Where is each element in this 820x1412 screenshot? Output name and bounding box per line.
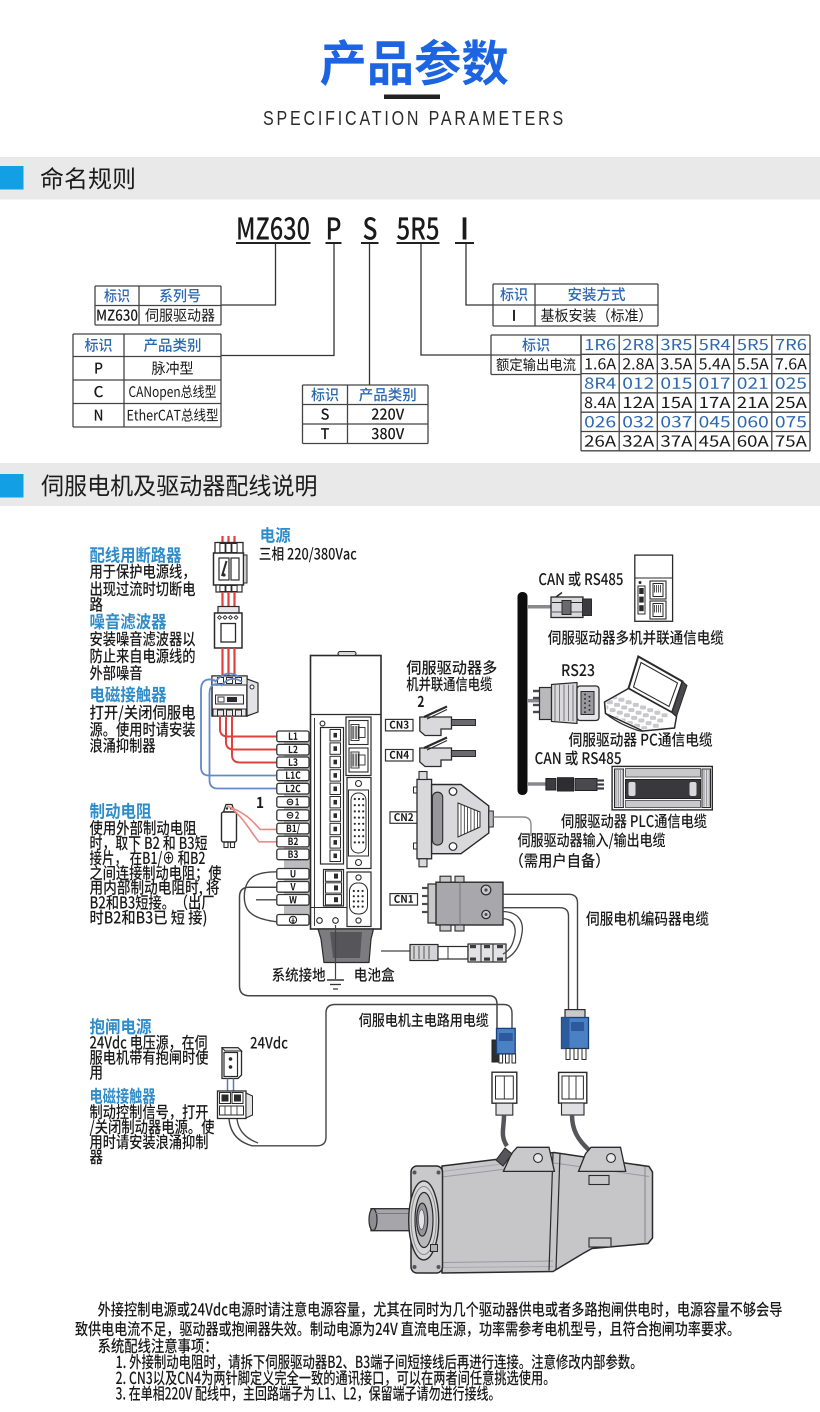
svg-text:SPECIFICATION PARAMETERS: SPECIFICATION PARAMETERS bbox=[263, 107, 566, 130]
